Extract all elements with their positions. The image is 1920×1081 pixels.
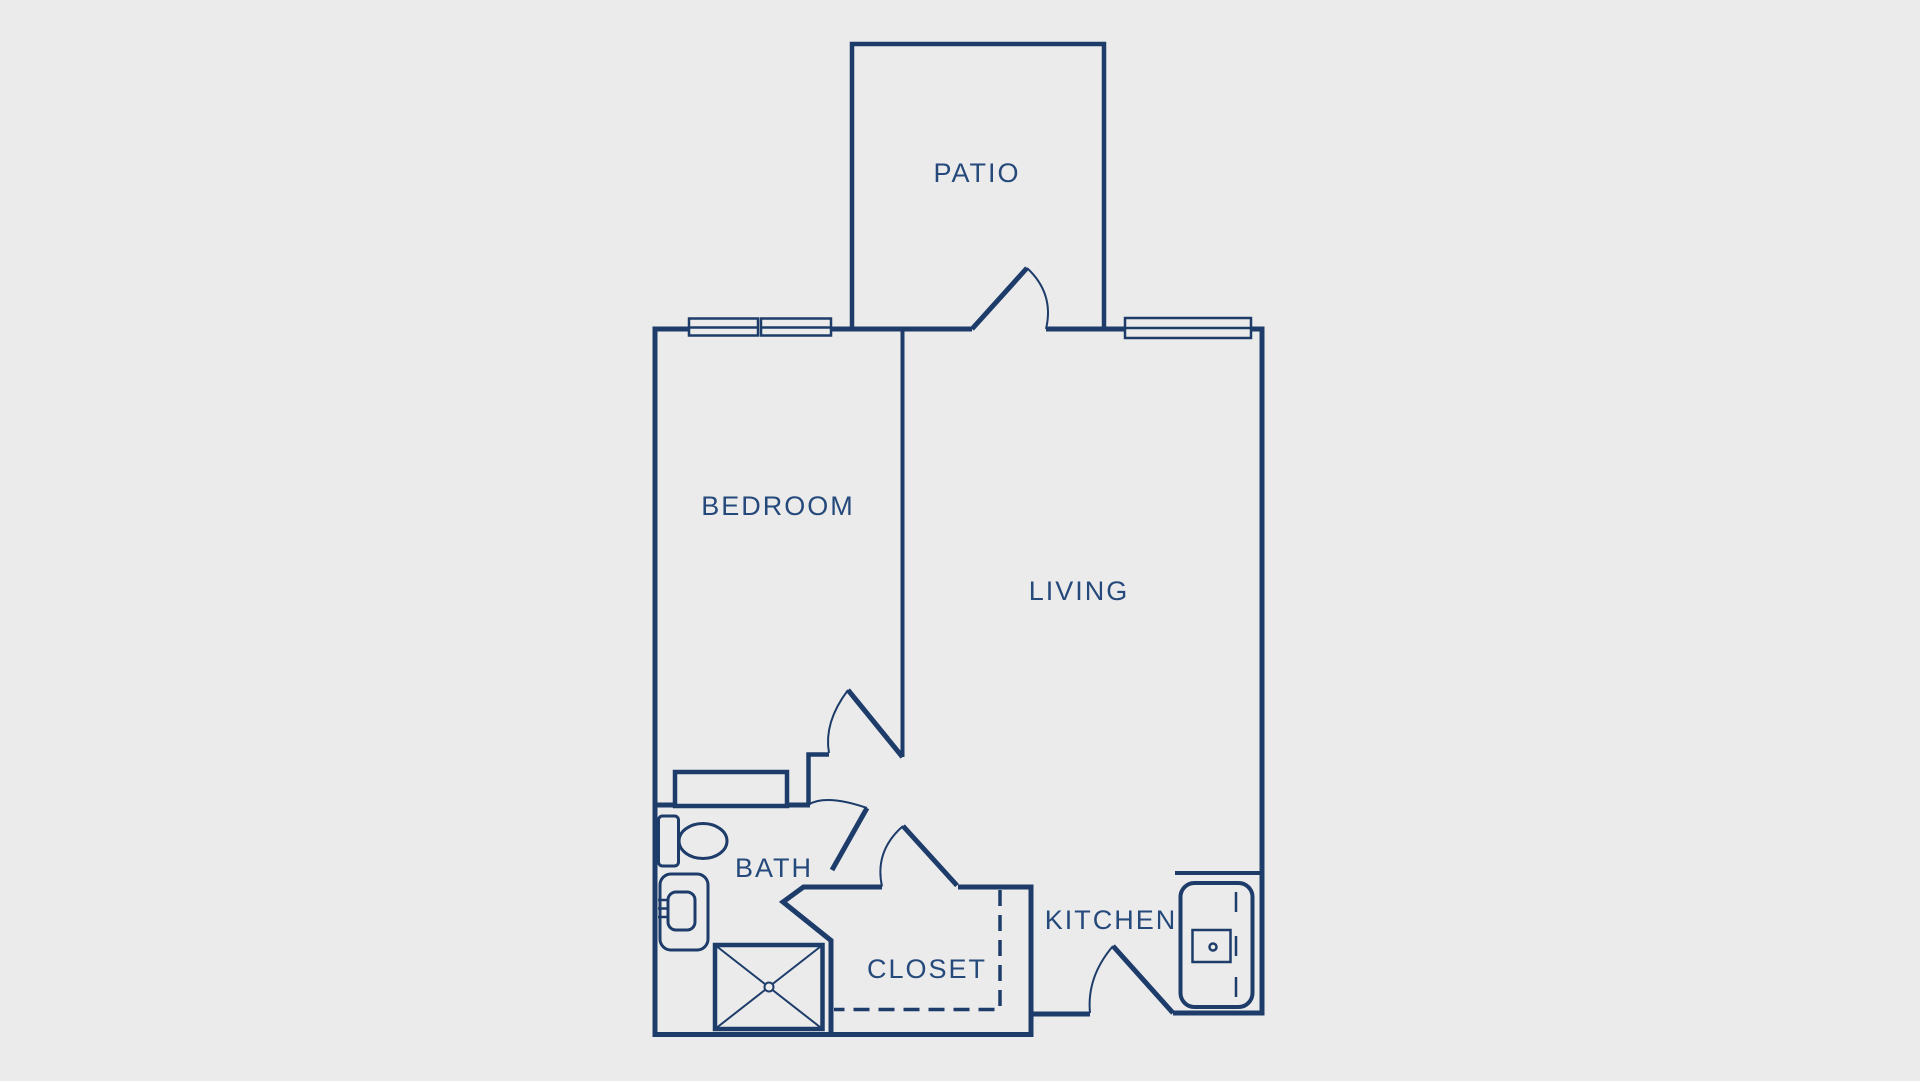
floorplan-svg: PATIO BEDROOM LIVING BATH CLOSET KITCHEN [0, 0, 1920, 1081]
room-label-closet: CLOSET [867, 954, 987, 984]
bedroom-window-right [761, 319, 831, 336]
room-label-bedroom: BEDROOM [701, 491, 855, 521]
room-label-bath: BATH [735, 853, 813, 883]
floorplan-canvas: PATIO BEDROOM LIVING BATH CLOSET KITCHEN [0, 0, 1920, 1081]
shower-drain [765, 983, 774, 992]
dresser [675, 772, 787, 806]
room-label-kitchen: KITCHEN [1045, 905, 1178, 935]
range-knob [1210, 944, 1217, 951]
bedroom-window-left [689, 319, 758, 336]
living-window [1125, 318, 1251, 338]
room-label-patio: PATIO [933, 158, 1020, 188]
shower [715, 945, 823, 1029]
kitchen-range [1181, 883, 1253, 1007]
room-label-living: LIVING [1029, 576, 1130, 606]
